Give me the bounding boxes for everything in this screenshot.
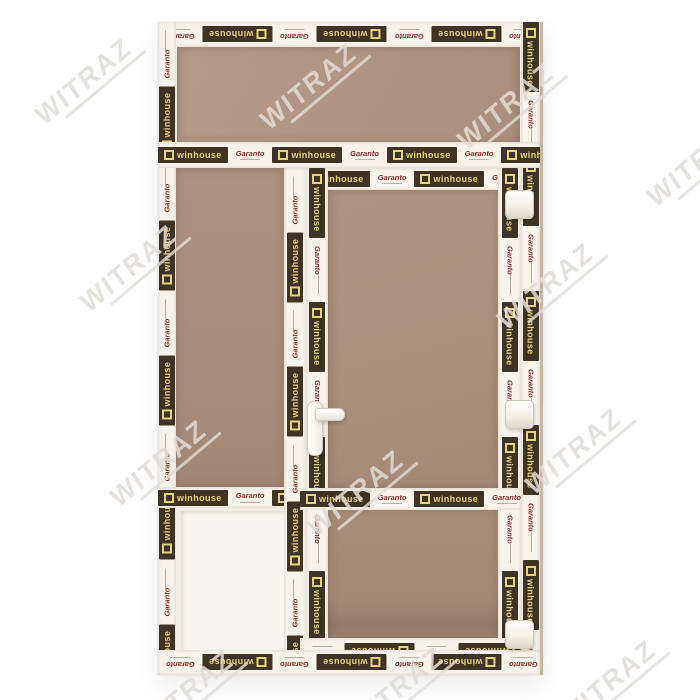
tape-fine-print-line: [318, 543, 319, 563]
tape-segment: winhouseGaranto: [498, 168, 521, 302]
winhouse-logo-icon: [162, 544, 172, 554]
winhouse-logo-icon: [526, 566, 536, 576]
tape-segment: winhouseGaranto: [284, 168, 306, 302]
garanto-tape-label: Garanto: [387, 657, 432, 668]
tape-fine-print-line: [285, 657, 305, 658]
garanto-brand-text: Garanto: [378, 174, 407, 182]
garanto-tape-label: Garanto: [291, 168, 299, 233]
garanto-tape-label: Garanto: [163, 425, 171, 490]
tape-segment: winhouseGaranto: [158, 291, 176, 425]
winhouse-brand-text: winhouse: [526, 444, 536, 489]
garanto-tape-label: Garanto: [457, 150, 502, 161]
tape-door-transom: winhouseGarantowinhouseGarantowinhouseGa…: [300, 488, 521, 510]
garanto-brand-text: Garanto: [291, 330, 299, 359]
hinge-top: [505, 190, 534, 219]
garanto-tape-label: Garanto: [291, 302, 299, 367]
winhouse-tape-block: winhouse: [159, 221, 175, 291]
winhouse-tape-block: winhouse: [432, 27, 502, 43]
winhouse-brand-text: winhouse: [323, 658, 368, 668]
tape-segment: winhouseGaranto: [306, 168, 328, 302]
watermark-underline: [65, 49, 146, 118]
tape-mullion: winhouseGarantowinhouseGarantowinhouseGa…: [284, 168, 306, 652]
winhouse-brand-text: winhouse: [526, 310, 536, 355]
witraz-watermark: WITRAZ: [542, 623, 683, 700]
garanto-tape-label: Garanto: [370, 494, 415, 505]
winhouse-brand-text: winhouse: [312, 590, 322, 635]
garanto-brand-text: Garanto: [236, 492, 265, 500]
garanto-tape-label: Garanto: [163, 22, 171, 87]
tape-fine-print-line: [355, 159, 375, 160]
garanto-brand-text: Garanto: [527, 503, 535, 532]
tape-fine-print-line: [531, 532, 532, 552]
garanto-brand-text: Garanto: [291, 196, 299, 225]
garanto-brand-text: Garanto: [163, 319, 171, 348]
winhouse-tape-block: winhouse: [203, 655, 273, 671]
winhouse-brand-text: winhouse: [438, 658, 483, 668]
winhouse-logo-icon: [505, 443, 515, 453]
winhouse-tape-block: winhouse: [272, 147, 342, 163]
watermark-underline: [589, 651, 670, 700]
garanto-brand-text: Garanto: [291, 599, 299, 628]
garanto-tape-label: Garanto: [484, 494, 521, 505]
tape-fine-print-line: [312, 646, 332, 647]
garanto-brand-text: Garanto: [236, 150, 265, 158]
tape-fine-print-line: [166, 568, 167, 588]
winhouse-logo-icon: [162, 275, 172, 285]
winhouse-tape-block: winhouse: [158, 147, 228, 163]
winhouse-tape-block: winhouse: [309, 571, 325, 641]
winhouse-brand-text: winhouse: [526, 579, 536, 624]
winhouse-brand-text: winhouse: [291, 150, 336, 160]
tape-segment: winhouseGaranto: [272, 142, 386, 168]
garanto-tape-label: Garanto: [228, 492, 273, 503]
winhouse-tape-block: winhouse: [203, 27, 273, 43]
tape-segment: winhouseGaranto: [387, 650, 501, 675]
winhouse-logo-icon: [526, 431, 536, 441]
garanto-brand-text: Garanto: [166, 660, 195, 668]
garanto-tape-label: Garanto: [506, 238, 514, 303]
winhouse-brand-text: winhouse: [290, 373, 300, 418]
winhouse-tape-block: winhouse: [387, 147, 457, 163]
tape-segment: winhouseGaranto: [300, 488, 414, 510]
garanto-brand-text: Garanto: [465, 150, 494, 158]
winhouse-tape-block: winhouse: [287, 502, 303, 572]
watermark-underline: [555, 419, 636, 488]
winhouse-logo-icon: [485, 30, 495, 40]
tape-fine-print-line: [166, 299, 167, 319]
garanto-tape-label: Garanto: [158, 657, 203, 668]
tape-fine-print-line: [166, 433, 167, 453]
winhouse-logo-icon: [164, 150, 174, 160]
tape-segment: winhouseGaranto: [158, 487, 272, 508]
winhouse-tape-block: winhouse: [317, 27, 387, 43]
garanto-brand-text: Garanto: [378, 494, 407, 502]
winhouse-logo-icon: [306, 494, 316, 504]
garanto-tape-label: Garanto: [527, 495, 535, 560]
winhouse-brand-text: winhouse: [323, 30, 368, 40]
winhouse-brand-text: winhouse: [433, 174, 478, 184]
garanto-tape-label: Garanto: [228, 150, 273, 161]
tape-fine-print-line: [510, 274, 511, 294]
winhouse-logo-icon: [290, 286, 300, 296]
winhouse-logo-icon: [505, 308, 515, 318]
tape-fine-print-line: [240, 502, 260, 503]
winhouse-logo-icon: [420, 174, 430, 184]
winhouse-tape-block: winhouse: [159, 356, 175, 426]
garanto-brand-text: Garanto: [163, 453, 171, 482]
winhouse-brand-text: winhouse: [433, 494, 478, 504]
garanto-tape-label: Garanto: [342, 150, 387, 161]
winhouse-brand-text: winhouse: [162, 362, 172, 407]
garanto-tape-label: Garanto: [163, 291, 171, 356]
winhouse-brand-text: winhouse: [526, 41, 536, 86]
winhouse-logo-icon: [256, 658, 266, 668]
garanto-tape-label: Garanto: [527, 226, 535, 291]
winhouse-brand-text: winhouse: [209, 30, 254, 40]
winhouse-logo-icon: [393, 150, 403, 160]
winhouse-logo-icon: [278, 150, 288, 160]
door-handle-lever: [315, 408, 345, 421]
garanto-brand-text: Garanto: [527, 369, 535, 398]
winhouse-logo-icon: [526, 297, 536, 307]
garanto-tape-label: Garanto: [501, 657, 540, 668]
tape-segment: winhouseGaranto: [158, 650, 272, 675]
winhouse-logo-icon: [420, 494, 430, 504]
tape-segment: winhouseGaranto: [272, 650, 386, 675]
garanto-brand-text: Garanto: [395, 660, 424, 668]
winhouse-tape-block: winhouse: [414, 491, 484, 507]
tape-fine-print-line: [166, 30, 167, 50]
tape-fine-print-line: [510, 543, 511, 563]
tape-segment: winhouseGaranto: [284, 302, 306, 436]
tape-segment: winhouseGaranto: [158, 142, 272, 168]
tape-fine-print-line: [497, 503, 517, 504]
garanto-brand-text: Garanto: [350, 150, 379, 158]
winhouse-tape-block: winhouse: [414, 171, 484, 187]
tape-segment: winhouseGaranto: [158, 22, 176, 156]
tape-fine-print-line: [531, 263, 532, 283]
garanto-tape-label: Garanto: [370, 174, 415, 185]
winhouse-tape-block: winhouse: [317, 655, 387, 671]
winhouse-logo-icon: [256, 30, 266, 40]
winhouse-logo-icon: [162, 409, 172, 419]
tape-segment: winhouseGaranto: [501, 650, 540, 675]
winhouse-logo-icon: [371, 30, 381, 40]
garanto-tape-label: Garanto: [387, 29, 432, 40]
tape-segment: winhouseGaranto: [272, 22, 386, 47]
tape-segment: winhouseGaranto: [521, 156, 540, 290]
garanto-brand-text: Garanto: [395, 32, 424, 40]
tape-top-frame: winhouseGarantowinhouseGarantowinhouseGa…: [158, 22, 540, 47]
winhouse-logo-icon: [505, 174, 515, 184]
garanto-brand-text: Garanto: [509, 660, 538, 668]
winhouse-tape-block: winhouse: [309, 302, 325, 372]
winhouse-tape-block: winhouse: [501, 147, 540, 163]
sidelight-glass: [174, 167, 286, 489]
product-photo: WITRAZWITRAZWITRAZWITRAZWITRAZWITRAZWITR…: [0, 0, 700, 700]
tape-fine-print-line: [382, 503, 402, 504]
hinge-bottom: [505, 620, 534, 649]
tape-segment: winhouseGaranto: [521, 425, 540, 559]
winhouse-brand-text: winhouse: [290, 239, 300, 284]
tape-fine-print-line: [399, 657, 419, 658]
garanto-brand-text: Garanto: [163, 50, 171, 79]
winhouse-brand-text: winhouse: [162, 93, 172, 138]
winhouse-logo-icon: [312, 174, 322, 184]
winhouse-tape-block: winhouse: [432, 655, 502, 671]
winhouse-tape-block: winhouse: [309, 168, 325, 238]
garanto-tape-label: Garanto: [163, 560, 171, 625]
winhouse-brand-text: winhouse: [177, 493, 222, 503]
garanto-brand-text: Garanto: [280, 32, 309, 40]
tape-left-frame: winhouseGarantowinhouseGarantowinhouseGa…: [158, 22, 176, 675]
winhouse-logo-icon: [507, 150, 517, 160]
winhouse-tape-block: winhouse: [523, 22, 539, 92]
tape-fine-print-line: [285, 29, 305, 30]
tape-fine-print-line: [469, 159, 489, 160]
winhouse-logo-icon: [485, 658, 495, 668]
winhouse-tape-block: winhouse: [523, 291, 539, 361]
hinge-middle: [505, 400, 534, 429]
garanto-brand-text: Garanto: [492, 494, 521, 502]
garanto-tape-label: Garanto: [291, 571, 299, 636]
sidelight-bottom-panel: [176, 506, 294, 662]
garanto-tape-label: Garanto: [272, 657, 317, 668]
winhouse-brand-text: winhouse: [209, 658, 254, 668]
tape-fine-print-line: [399, 29, 419, 30]
tape-segment: winhouseGaranto: [521, 22, 540, 156]
witraz-watermark: WITRAZ: [630, 103, 700, 238]
winhouse-logo-icon: [312, 308, 322, 318]
garanto-brand-text: Garanto: [527, 234, 535, 263]
garanto-brand-text: Garanto: [313, 515, 321, 544]
winhouse-tape-block: winhouse: [158, 490, 228, 506]
garanto-tape-label: Garanto: [506, 507, 514, 572]
tape-segment: winhouseGaranto: [272, 487, 284, 508]
winhouse-brand-text: winhouse: [520, 150, 540, 160]
tape-segment: winhouseGaranto: [501, 142, 540, 168]
tape-fine-print-line: [427, 646, 447, 647]
winhouse-logo-icon: [505, 577, 515, 587]
winhouse-logo-icon: [278, 493, 284, 503]
winhouse-logo-icon: [312, 577, 322, 587]
winhouse-brand-text: winhouse: [177, 150, 222, 160]
garanto-brand-text: Garanto: [506, 515, 514, 544]
winhouse-logo-icon: [290, 555, 300, 565]
witraz-watermark: WITRAZ: [18, 21, 159, 156]
tape-sidelight-transom: winhouseGarantowinhouseGarantowinhouseGa…: [158, 487, 284, 508]
garanto-brand-text: Garanto: [280, 660, 309, 668]
garanto-brand-text: Garanto: [527, 100, 535, 129]
winhouse-brand-text: winhouse: [505, 321, 515, 366]
winhouse-logo-icon: [164, 493, 174, 503]
tape-fine-print-line: [294, 445, 295, 465]
winhouse-tape-block: winhouse: [272, 490, 284, 506]
winhouse-logo-icon: [371, 658, 381, 668]
garanto-tape-label: Garanto: [291, 437, 299, 502]
garanto-tape-label: Garanto: [272, 29, 317, 40]
winhouse-brand-text: winhouse: [406, 150, 451, 160]
winhouse-brand-text: winhouse: [290, 508, 300, 553]
winhouse-brand-text: winhouse: [312, 321, 322, 366]
winhouse-logo-icon: [526, 28, 536, 38]
winhouse-brand-text: winhouse: [438, 30, 483, 40]
tape-segment: winhouseGaranto: [387, 22, 501, 47]
tape-fine-print-line: [382, 183, 402, 184]
watermark-underline: [677, 131, 700, 200]
winhouse-tape-block: winhouse: [287, 367, 303, 437]
tape-fine-print-line: [294, 579, 295, 599]
door-lower-glass: [328, 507, 500, 641]
garanto-brand-text: Garanto: [313, 246, 321, 275]
tape-bottom-frame: winhouseGarantowinhouseGarantowinhouseGa…: [158, 650, 540, 675]
door-upper-glass: [328, 189, 500, 489]
tape-fine-print-line: [514, 657, 534, 658]
garanto-tape-label: Garanto: [313, 507, 321, 572]
tape-segment: winhouseGaranto: [387, 142, 501, 168]
tape-fine-print-line: [240, 159, 260, 160]
tape-segment: winhouseGaranto: [414, 488, 521, 510]
tape-fine-print-line: [318, 274, 319, 294]
garanto-brand-text: Garanto: [506, 246, 514, 275]
tape-fine-print-line: [170, 657, 190, 658]
winhouse-tape-block: winhouse: [287, 233, 303, 303]
garanto-brand-text: Garanto: [291, 465, 299, 494]
winhouse-brand-text: winhouse: [319, 494, 364, 504]
tape-segment: winhouseGaranto: [158, 156, 176, 290]
transom-window-glass: [177, 46, 520, 145]
tape-transom-bar: winhouseGarantowinhouseGarantowinhouseGa…: [158, 142, 540, 168]
winhouse-tape-block: winhouse: [502, 302, 518, 372]
winhouse-brand-text: winhouse: [312, 187, 322, 232]
winhouse-tape-block: winhouse: [300, 491, 370, 507]
winhouse-tape-block: winhouse: [523, 425, 539, 495]
tape-fine-print-line: [294, 310, 295, 330]
tape-door-top-rail: winhouseGarantowinhouseGarantowinhouseGa…: [300, 168, 521, 190]
winhouse-logo-icon: [290, 421, 300, 431]
winhouse-brand-text: winhouse: [162, 227, 172, 272]
tape-fine-print-line: [294, 176, 295, 196]
garanto-tape-label: Garanto: [313, 238, 321, 303]
tape-right-frame: winhouseGarantowinhouseGarantowinhouseGa…: [521, 22, 540, 675]
garanto-brand-text: Garanto: [163, 588, 171, 617]
garanto-brand-text: Garanto: [163, 184, 171, 213]
